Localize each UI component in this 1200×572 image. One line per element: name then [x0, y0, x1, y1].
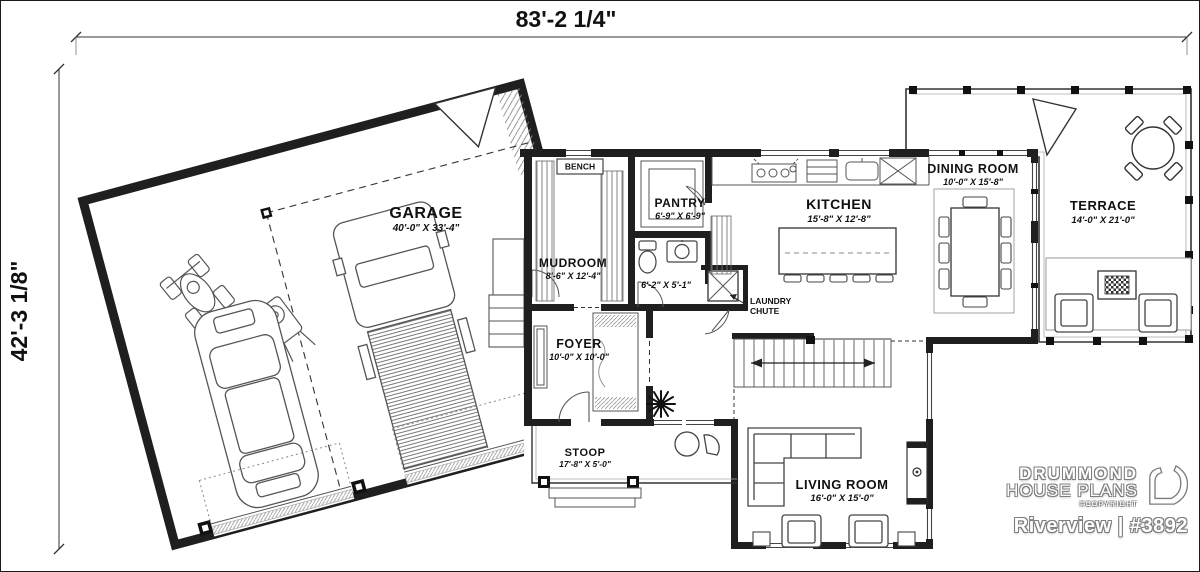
room-label-foyer: FOYER [556, 337, 602, 351]
room-label-living: LIVING ROOM [796, 477, 889, 492]
fireplace-icon [907, 442, 927, 504]
room-size-garage: 40'-0" X 33'-4" [392, 223, 460, 234]
dim-line-left: 42'-3 1/8" [6, 64, 64, 554]
overall-width-dim: 83'-2 1/4" [516, 6, 617, 32]
stoop-steps [549, 488, 641, 507]
bathroom-sink-icon [667, 240, 697, 262]
armchair-icon [1139, 294, 1177, 332]
floor-plan-sheet: GARAGE 40'-0" X 33'-4" BENCH MUDROOM 8'-… [0, 0, 1200, 572]
room-label-dining: DINING ROOM [927, 162, 1019, 176]
foyer-rug [593, 313, 638, 411]
range-icon [752, 164, 796, 182]
fridge-icon [880, 158, 916, 184]
dishwasher-icon [807, 160, 837, 182]
overall-height-dim: 42'-3 1/8" [6, 261, 32, 362]
side-table-icon [1098, 271, 1136, 299]
room-size-stoop: 17'-8" X 5'-0" [559, 459, 612, 469]
room-size-foyer: 10'-0" X 10'-0" [549, 352, 610, 362]
dining-table-icon [951, 208, 999, 296]
terrace-lounge [1046, 258, 1191, 332]
armchair-icon [1055, 294, 1093, 332]
room-label-garage: GARAGE [389, 205, 462, 222]
room-size-living: 16'-0" X 15'-0" [810, 493, 874, 504]
room-size-terrace: 14'-0" X 21'-0" [1071, 215, 1135, 226]
armchair-icon [782, 515, 821, 547]
side-table-icon [753, 532, 770, 546]
kitchen-cabinet [711, 216, 731, 274]
room-label-pantry: PANTRY [655, 196, 706, 210]
laundry-chute-label-2: CHUTE [750, 306, 780, 316]
floor-plan-drawing: GARAGE 40'-0" X 33'-4" BENCH MUDROOM 8'-… [1, 1, 1200, 572]
dining-room-furniture [934, 189, 1014, 313]
armchair-icon [849, 515, 888, 547]
side-table-icon [898, 532, 915, 546]
dim-line-top: 83'-2 1/4" [71, 6, 1192, 55]
room-size-dining: 10'-0" X 15'-8" [943, 177, 1004, 187]
room-label-mudroom: MUDROOM [539, 256, 607, 270]
kitchen-island [779, 228, 896, 282]
room-label-terrace: TERRACE [1070, 198, 1136, 213]
bench-label: BENCH [565, 162, 595, 172]
room-size-kitchen: 15'-8" X 12'-8" [807, 214, 871, 225]
lockers [601, 171, 623, 301]
room-label-stoop: STOOP [565, 447, 606, 459]
garage-steps [489, 239, 524, 347]
stools [784, 275, 893, 282]
room-size-mudroom: 8'-6" X 12'-4" [546, 271, 602, 281]
bath-size-label: 6'-2" X 5'-1" [641, 280, 692, 290]
laundry-chute-label-1: LAUNDRY [750, 296, 792, 306]
toilet-icon [639, 241, 656, 273]
room-size-pantry: 6'-9" X 6'-9" [655, 211, 706, 221]
room-label-kitchen: KITCHEN [806, 196, 872, 212]
